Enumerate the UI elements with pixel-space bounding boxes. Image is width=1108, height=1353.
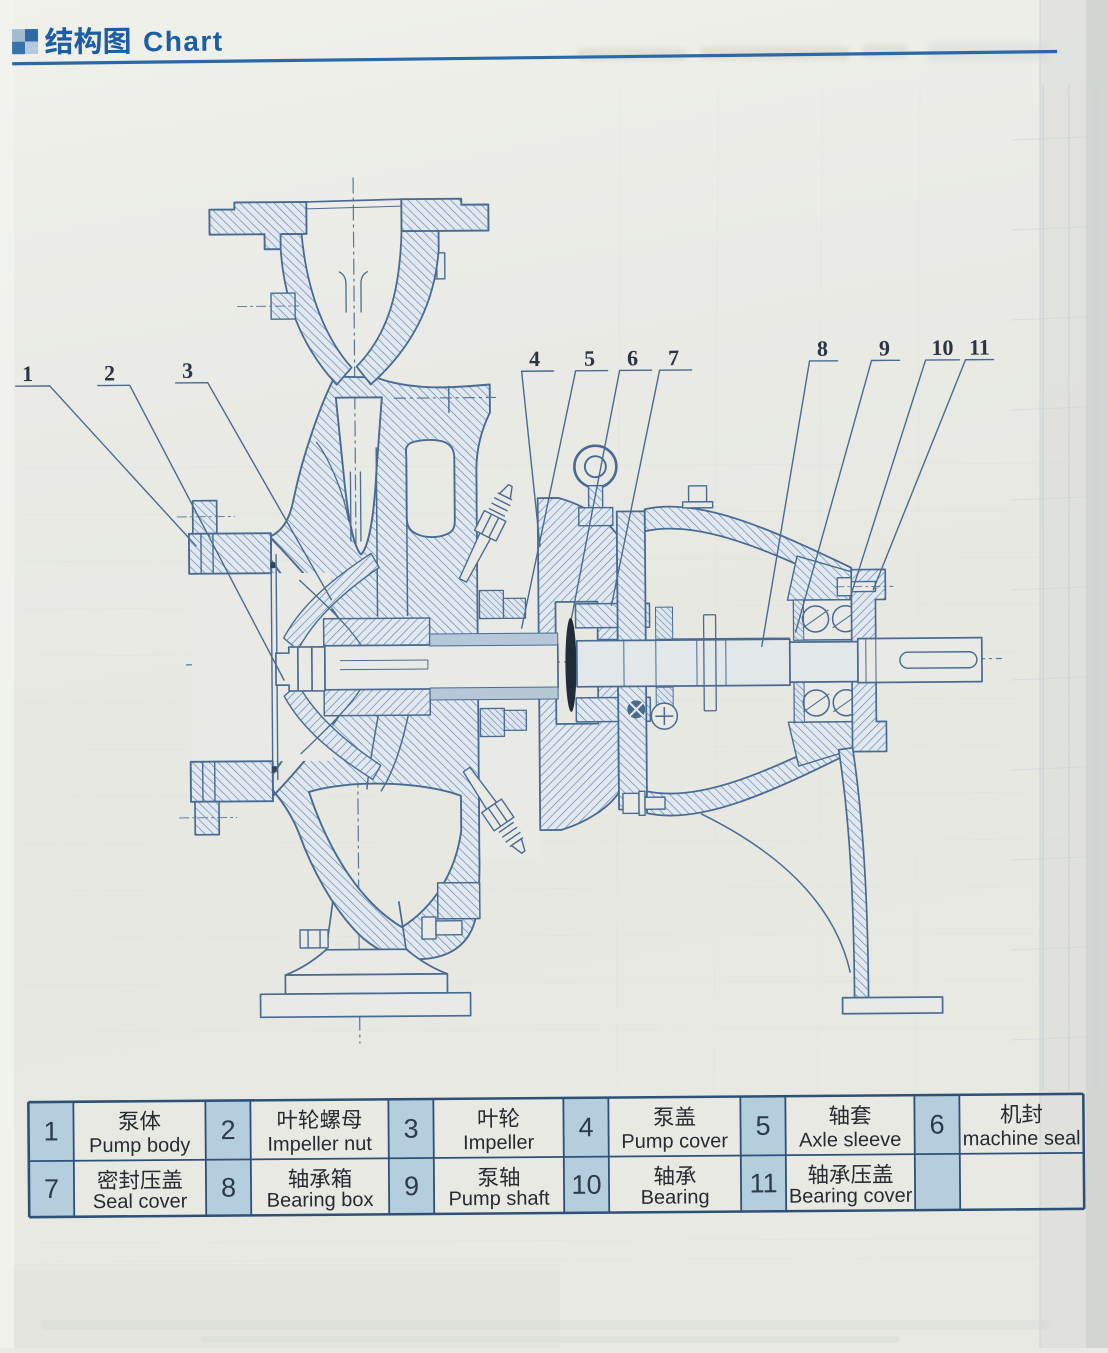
svg-text:Pump cover: Pump cover bbox=[621, 1130, 728, 1153]
svg-text:6: 6 bbox=[929, 1109, 944, 1139]
svg-text:7: 7 bbox=[668, 345, 679, 370]
svg-text:3: 3 bbox=[403, 1114, 418, 1144]
svg-text:1: 1 bbox=[22, 361, 33, 386]
svg-text:5: 5 bbox=[755, 1111, 770, 1141]
svg-text:9: 9 bbox=[404, 1171, 419, 1201]
svg-text:Chart: Chart bbox=[143, 26, 224, 58]
svg-text:Pump shaft: Pump shaft bbox=[448, 1188, 550, 1211]
svg-text:Bearing: Bearing bbox=[641, 1186, 710, 1209]
svg-text:2: 2 bbox=[220, 1115, 235, 1145]
svg-text:10: 10 bbox=[931, 335, 953, 360]
svg-text:Axle sleeve: Axle sleeve bbox=[799, 1129, 901, 1152]
svg-text:Bearing box: Bearing box bbox=[267, 1189, 374, 1212]
svg-text:11: 11 bbox=[749, 1168, 777, 1198]
svg-text:3: 3 bbox=[182, 358, 193, 383]
svg-text:1: 1 bbox=[43, 1116, 58, 1146]
svg-text:2: 2 bbox=[104, 360, 115, 385]
svg-text:8: 8 bbox=[221, 1173, 236, 1203]
svg-text:4: 4 bbox=[529, 346, 540, 371]
svg-text:10: 10 bbox=[571, 1170, 601, 1200]
svg-text:8: 8 bbox=[817, 336, 828, 361]
svg-text:machine seal: machine seal bbox=[963, 1127, 1081, 1150]
svg-text:7: 7 bbox=[44, 1174, 59, 1204]
svg-text:Bearing cover: Bearing cover bbox=[789, 1185, 913, 1208]
svg-text:5: 5 bbox=[584, 346, 595, 371]
svg-text:6: 6 bbox=[627, 345, 638, 370]
svg-text:Impeller: Impeller bbox=[463, 1132, 535, 1155]
svg-text:9: 9 bbox=[879, 335, 890, 360]
svg-text:Seal cover: Seal cover bbox=[93, 1190, 188, 1213]
svg-text:Pump body: Pump body bbox=[89, 1134, 190, 1157]
svg-text:Impeller nut: Impeller nut bbox=[267, 1133, 372, 1156]
svg-text:11: 11 bbox=[969, 335, 990, 360]
svg-text:4: 4 bbox=[578, 1112, 593, 1142]
